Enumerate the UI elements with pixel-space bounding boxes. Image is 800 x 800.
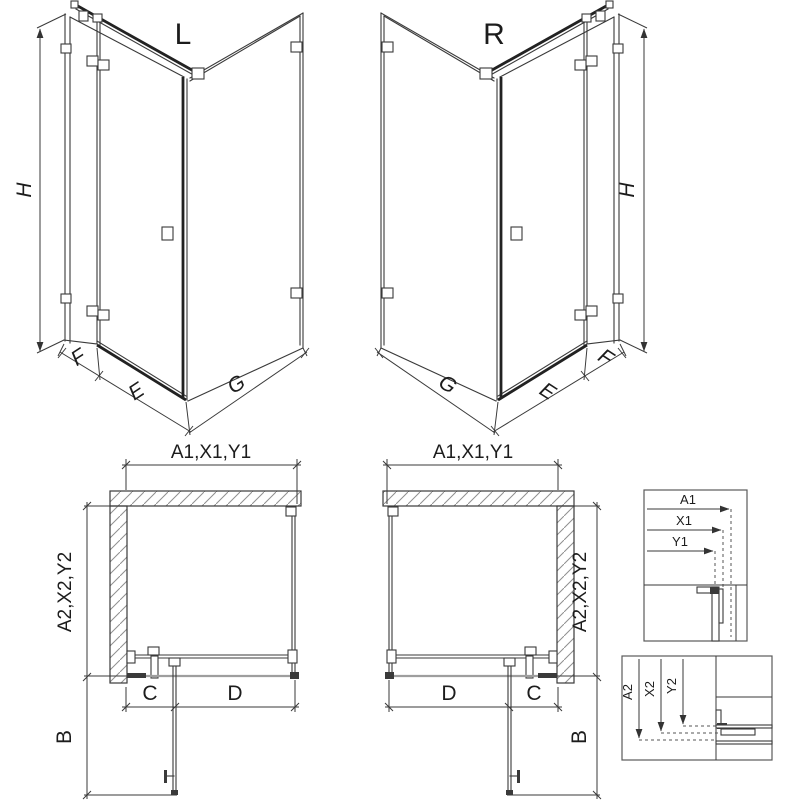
iso-view-right: R H F E G (375, 1, 647, 436)
plan-right-dim-b: B (568, 730, 591, 744)
detail-label-y2: Y2 (664, 678, 679, 694)
plan-left-dim-top: A1,X1,Y1 (171, 442, 251, 463)
detail-label-a1: A1 (680, 492, 696, 507)
plan-right-dim-c: C (526, 682, 541, 705)
wall-section-side (110, 506, 127, 683)
plan-right-dim-d: D (441, 682, 456, 705)
detail-label-x2: X2 (642, 681, 657, 697)
iso-left-dim-f: F (67, 344, 91, 371)
detail-label-x1: X1 (676, 513, 692, 528)
technical-drawing: L H F E G R H F E G A1,X1,Y1 A2,X2,Y2 C … (0, 0, 800, 800)
iso-right-title: R (483, 18, 505, 51)
iso-right-dim-h: H (616, 182, 639, 198)
wall-section-top (110, 491, 301, 506)
plan-view-left: A1,X1,Y1 A2,X2,Y2 C D B (53, 442, 301, 799)
detail-box-widths: A1 X1 Y1 (644, 490, 747, 641)
plan-left-dim-b: B (53, 730, 76, 744)
detail-label-y1: Y1 (672, 534, 688, 549)
detail-box-depths: A2 X2 Y2 (620, 656, 772, 760)
plan-view-right: A1,X1,Y1 A2,X2,Y2 D C B (383, 442, 601, 799)
plan-right-dim-side: A2,X2,Y2 (570, 552, 591, 632)
detail-label-a2: A2 (620, 684, 635, 700)
iso-right-dim-e: E (535, 378, 560, 405)
plan-right-dim-top: A1,X1,Y1 (433, 442, 513, 463)
plan-left-dim-side: A2,X2,Y2 (55, 552, 76, 632)
iso-left-linework (37, 1, 309, 436)
iso-right-linework (375, 1, 647, 436)
wall-section-top (383, 491, 574, 506)
iso-view-left: L H F E G (13, 1, 309, 436)
iso-left-dim-e: E (124, 378, 149, 405)
detail-box-frame (644, 490, 747, 641)
drawing-canvas: L H F E G R H F E G A1,X1,Y1 A2,X2,Y2 C … (0, 0, 800, 800)
iso-left-title: L (175, 18, 192, 51)
plan-left-dim-c: C (142, 682, 157, 705)
plan-left-dim-d: D (227, 682, 242, 705)
iso-left-dim-h: H (13, 182, 36, 198)
